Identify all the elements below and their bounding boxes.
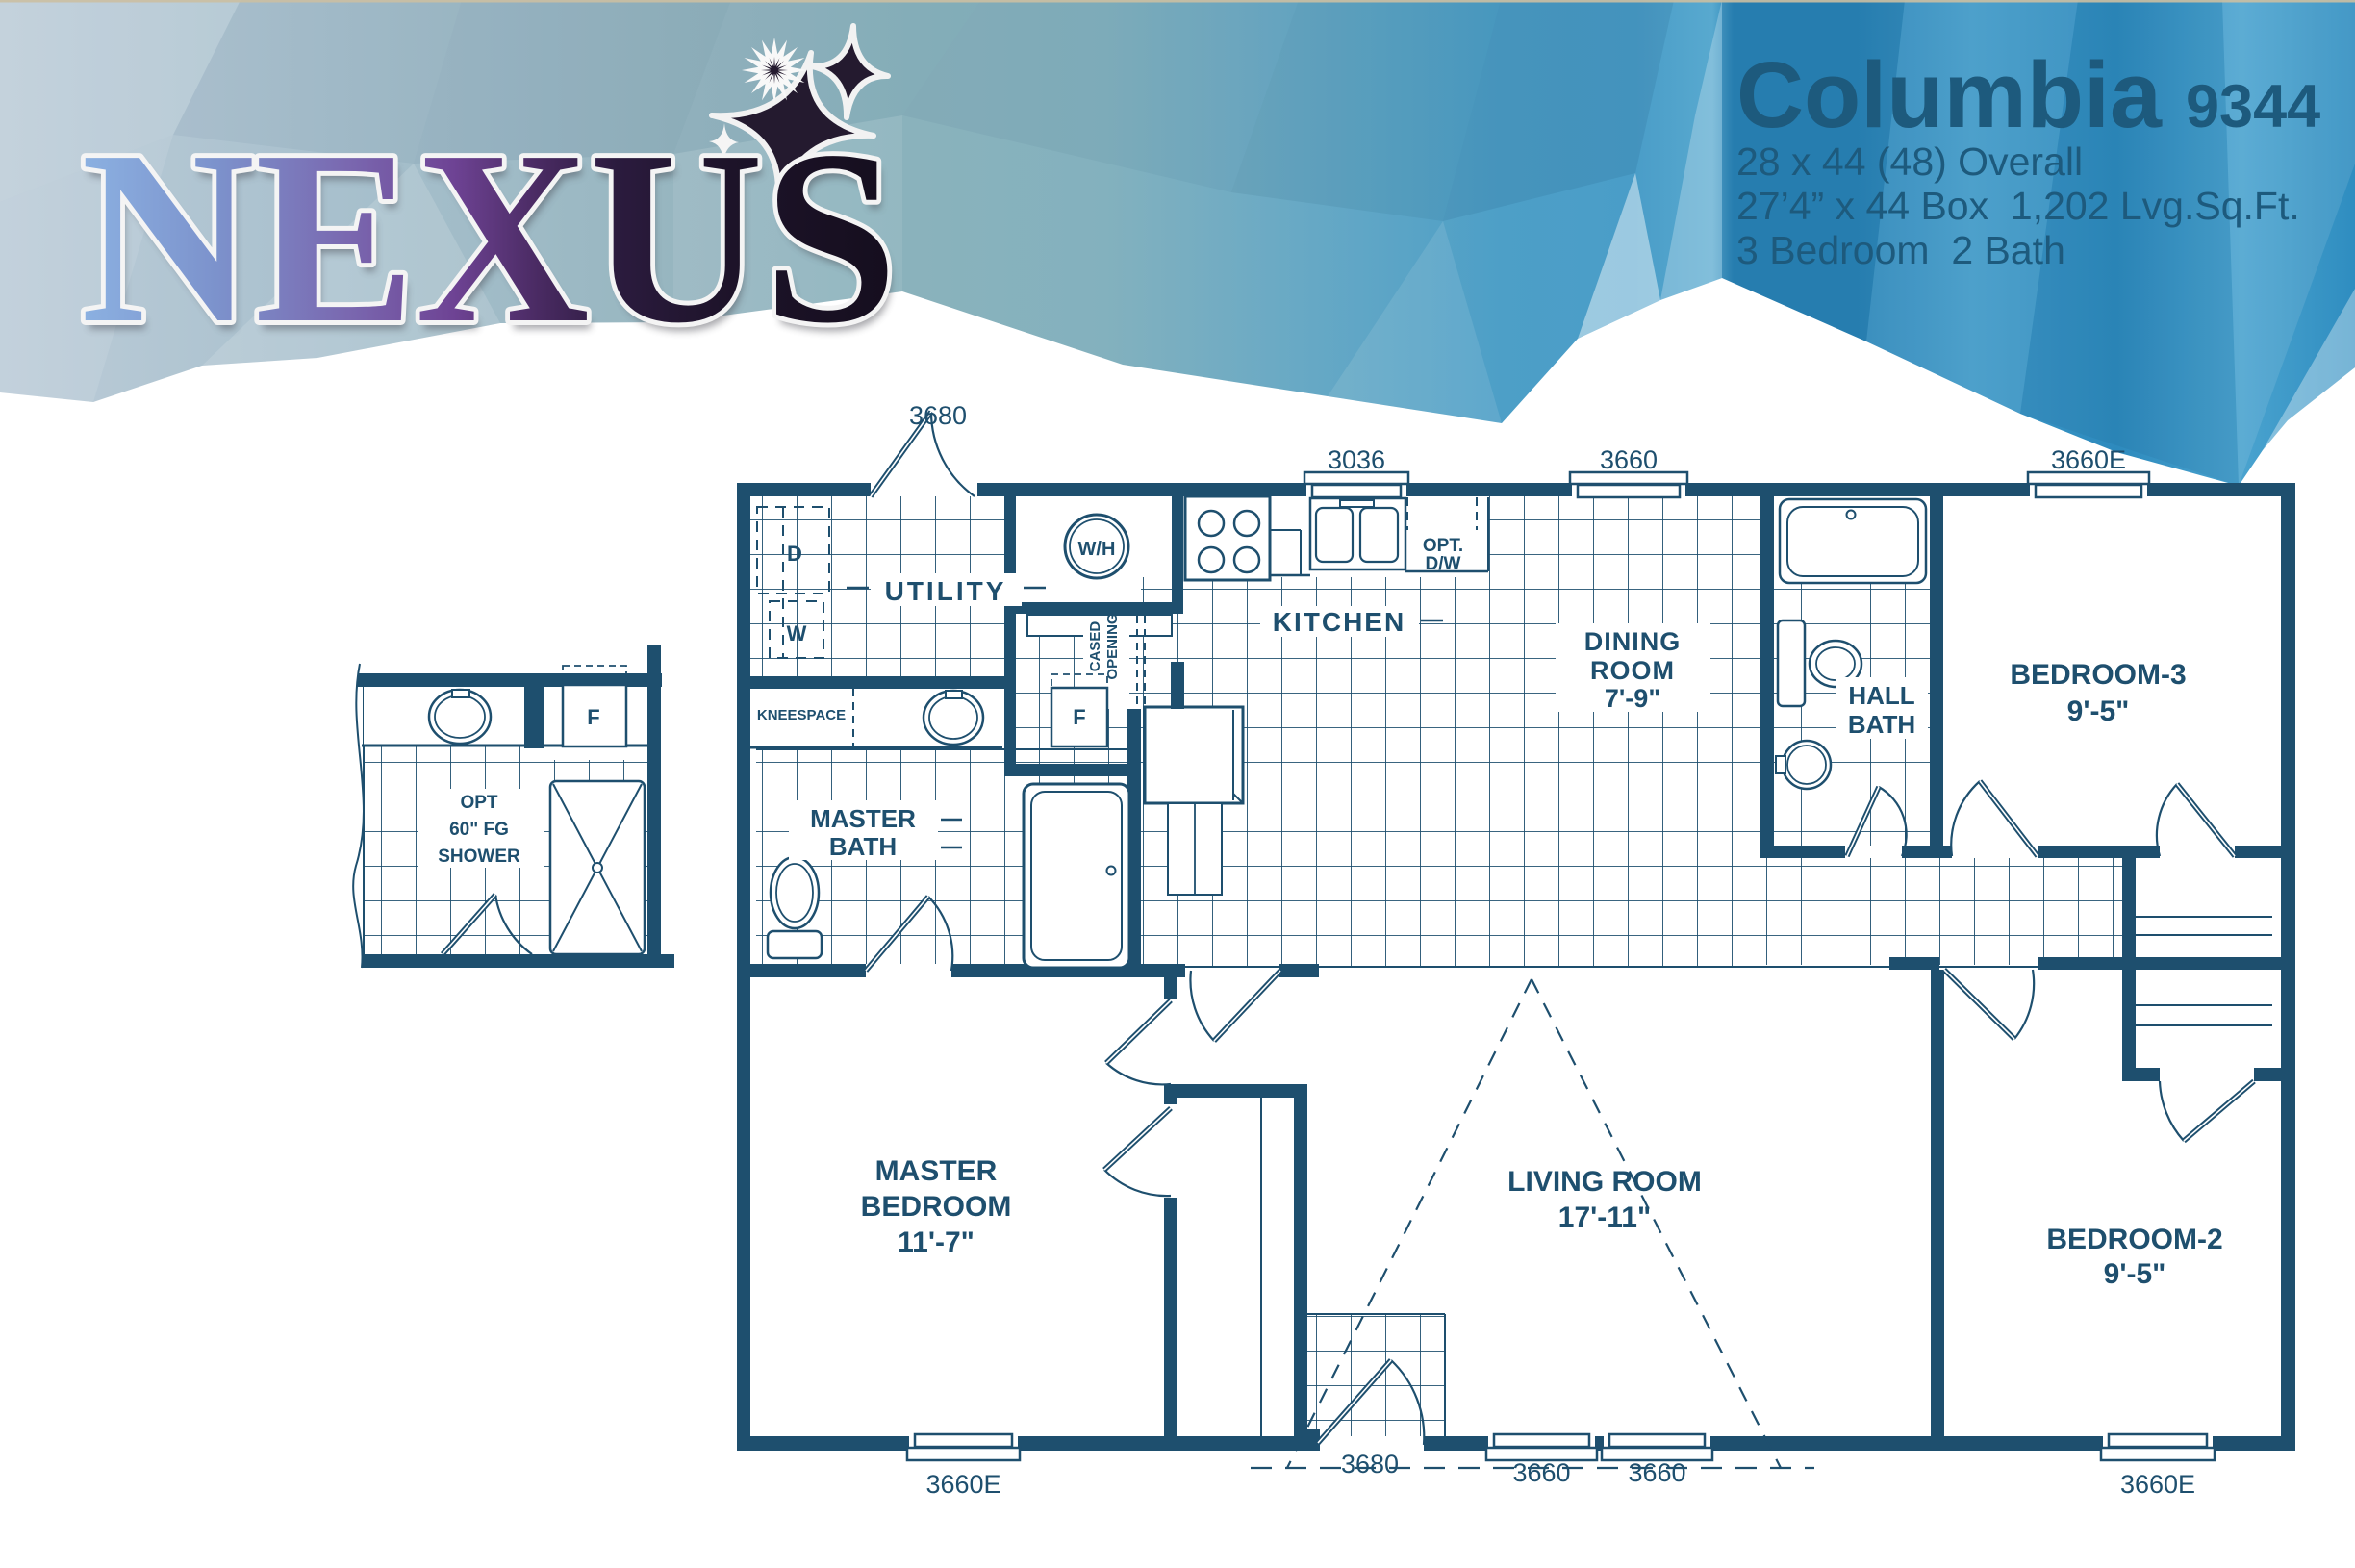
svg-text:BEDROOM-2: BEDROOM-2 (2046, 1224, 2222, 1255)
svg-text:MASTER: MASTER (810, 804, 916, 833)
svg-text:F: F (1073, 705, 1085, 729)
svg-text:D: D (787, 542, 802, 566)
svg-text:60" FG: 60" FG (449, 820, 509, 840)
svg-text:3 Bedroom 2 Bath: 3 Bedroom 2 Bath (1736, 228, 2065, 272)
svg-text:3680: 3680 (909, 401, 967, 430)
svg-text:3660E: 3660E (2120, 1470, 2195, 1499)
svg-text:3660E: 3660E (2051, 445, 2126, 474)
svg-text:9'-5": 9'-5" (2104, 1258, 2166, 1290)
svg-text:KNEESPACE: KNEESPACE (757, 707, 846, 723)
svg-text:DINING: DINING (1584, 627, 1682, 656)
svg-text:3660: 3660 (1512, 1458, 1570, 1487)
svg-text:27’4” x 44 Box 1,202 Lvg.Sq.F: 27’4” x 44 Box 1,202 Lvg.Sq.Ft. (1736, 184, 2300, 228)
svg-text:ROOM: ROOM (1590, 656, 1675, 685)
svg-text:SHOWER: SHOWER (438, 847, 520, 867)
svg-text:OPT.: OPT. (1423, 536, 1463, 556)
svg-text:KITCHEN: KITCHEN (1273, 607, 1405, 637)
svg-text:BATH: BATH (829, 832, 897, 861)
svg-text:F: F (587, 705, 599, 729)
svg-text:BEDROOM-3: BEDROOM-3 (2010, 659, 2186, 691)
svg-text:D/W: D/W (1426, 554, 1461, 574)
svg-text:3036: 3036 (1328, 445, 1385, 474)
svg-text:W/H: W/H (1078, 539, 1116, 560)
svg-text:OPT: OPT (460, 793, 497, 813)
svg-text:BEDROOM: BEDROOM (861, 1191, 1012, 1223)
svg-text:3660: 3660 (1600, 445, 1658, 474)
svg-text:LIVING ROOM: LIVING ROOM (1507, 1166, 1702, 1198)
svg-text:3660: 3660 (1628, 1458, 1685, 1487)
svg-text:MASTER: MASTER (875, 1155, 998, 1187)
svg-text:3660E: 3660E (925, 1470, 1000, 1499)
svg-text:9'-5": 9'-5" (2067, 695, 2130, 727)
svg-text:NEXUS: NEXUS (81, 99, 898, 374)
svg-text:17'-11": 17'-11" (1558, 1201, 1651, 1233)
svg-text:Columbia: Columbia (1736, 42, 2163, 147)
svg-text:28 x 44 (48) Overall: 28 x 44 (48) Overall (1736, 139, 2083, 184)
svg-text:HALL: HALL (1848, 681, 1914, 710)
svg-text:BATH: BATH (1848, 710, 1915, 739)
svg-text:UTILITY: UTILITY (885, 576, 1007, 606)
svg-text:11'-7": 11'-7" (898, 1227, 975, 1258)
svg-text:9344: 9344 (2186, 73, 2320, 140)
svg-text:3680: 3680 (1341, 1450, 1399, 1479)
svg-text:7'-9": 7'-9" (1605, 684, 1660, 713)
svg-text:OPENING: OPENING (1104, 613, 1121, 679)
svg-text:CASED: CASED (1087, 621, 1103, 672)
svg-text:W: W (787, 621, 807, 645)
